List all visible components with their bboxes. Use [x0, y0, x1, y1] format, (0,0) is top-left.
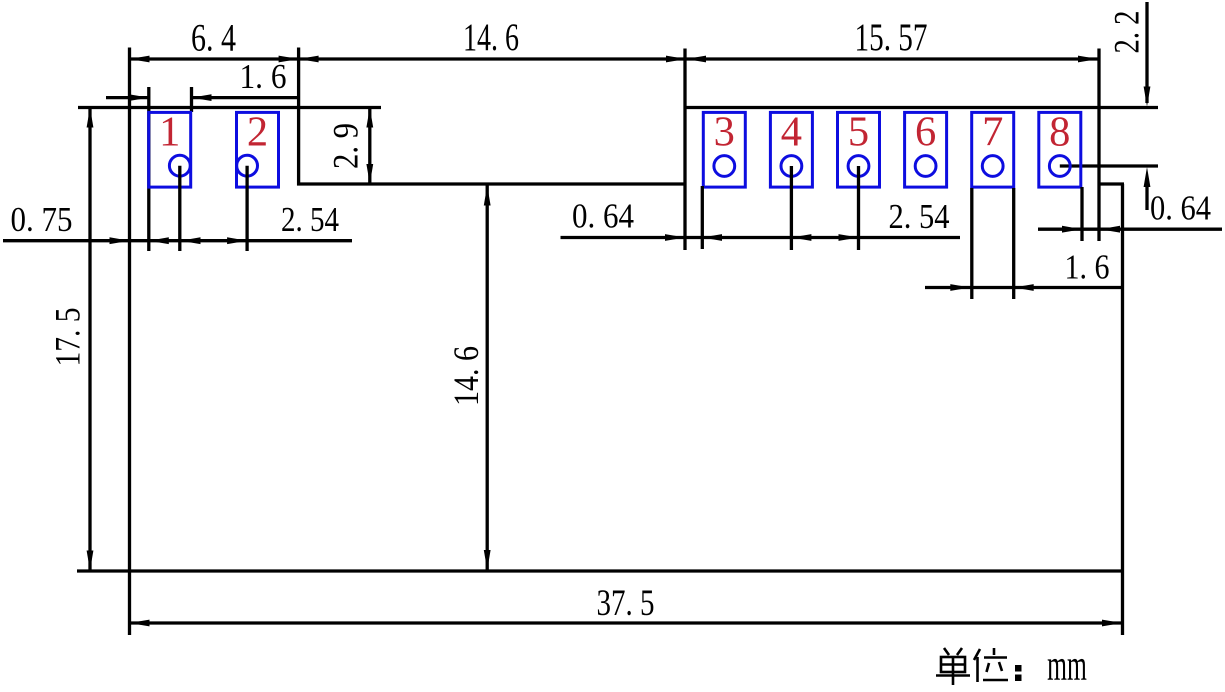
- svg-text:2. 54: 2. 54: [281, 200, 339, 239]
- svg-text:8: 8: [1049, 109, 1070, 156]
- svg-text:17. 5: 17. 5: [48, 308, 88, 367]
- svg-text:1. 6: 1. 6: [1065, 249, 1110, 287]
- svg-text:14. 6: 14. 6: [463, 16, 519, 59]
- svg-text:1: 1: [159, 109, 180, 156]
- svg-text:37. 5: 37. 5: [597, 582, 655, 623]
- svg-text:14. 6: 14. 6: [446, 346, 486, 406]
- svg-text:2. 2: 2. 2: [1107, 11, 1147, 54]
- svg-text:6. 4: 6. 4: [191, 17, 236, 60]
- svg-text:4: 4: [781, 109, 802, 156]
- svg-text:2. 9: 2. 9: [326, 123, 366, 169]
- svg-text:6: 6: [915, 109, 936, 156]
- svg-text:15. 57: 15. 57: [855, 16, 928, 59]
- svg-text:5: 5: [848, 109, 869, 156]
- svg-text:1. 6: 1. 6: [240, 58, 287, 96]
- svg-text:3: 3: [714, 109, 735, 156]
- svg-text:2. 54: 2. 54: [889, 197, 950, 236]
- svg-text:0. 64: 0. 64: [572, 197, 634, 236]
- svg-text:7: 7: [982, 109, 1003, 156]
- svg-text:mm: mm: [1047, 641, 1087, 690]
- svg-text:0. 64: 0. 64: [1150, 189, 1211, 228]
- svg-text:2: 2: [247, 109, 268, 156]
- svg-text:0. 75: 0. 75: [11, 200, 73, 239]
